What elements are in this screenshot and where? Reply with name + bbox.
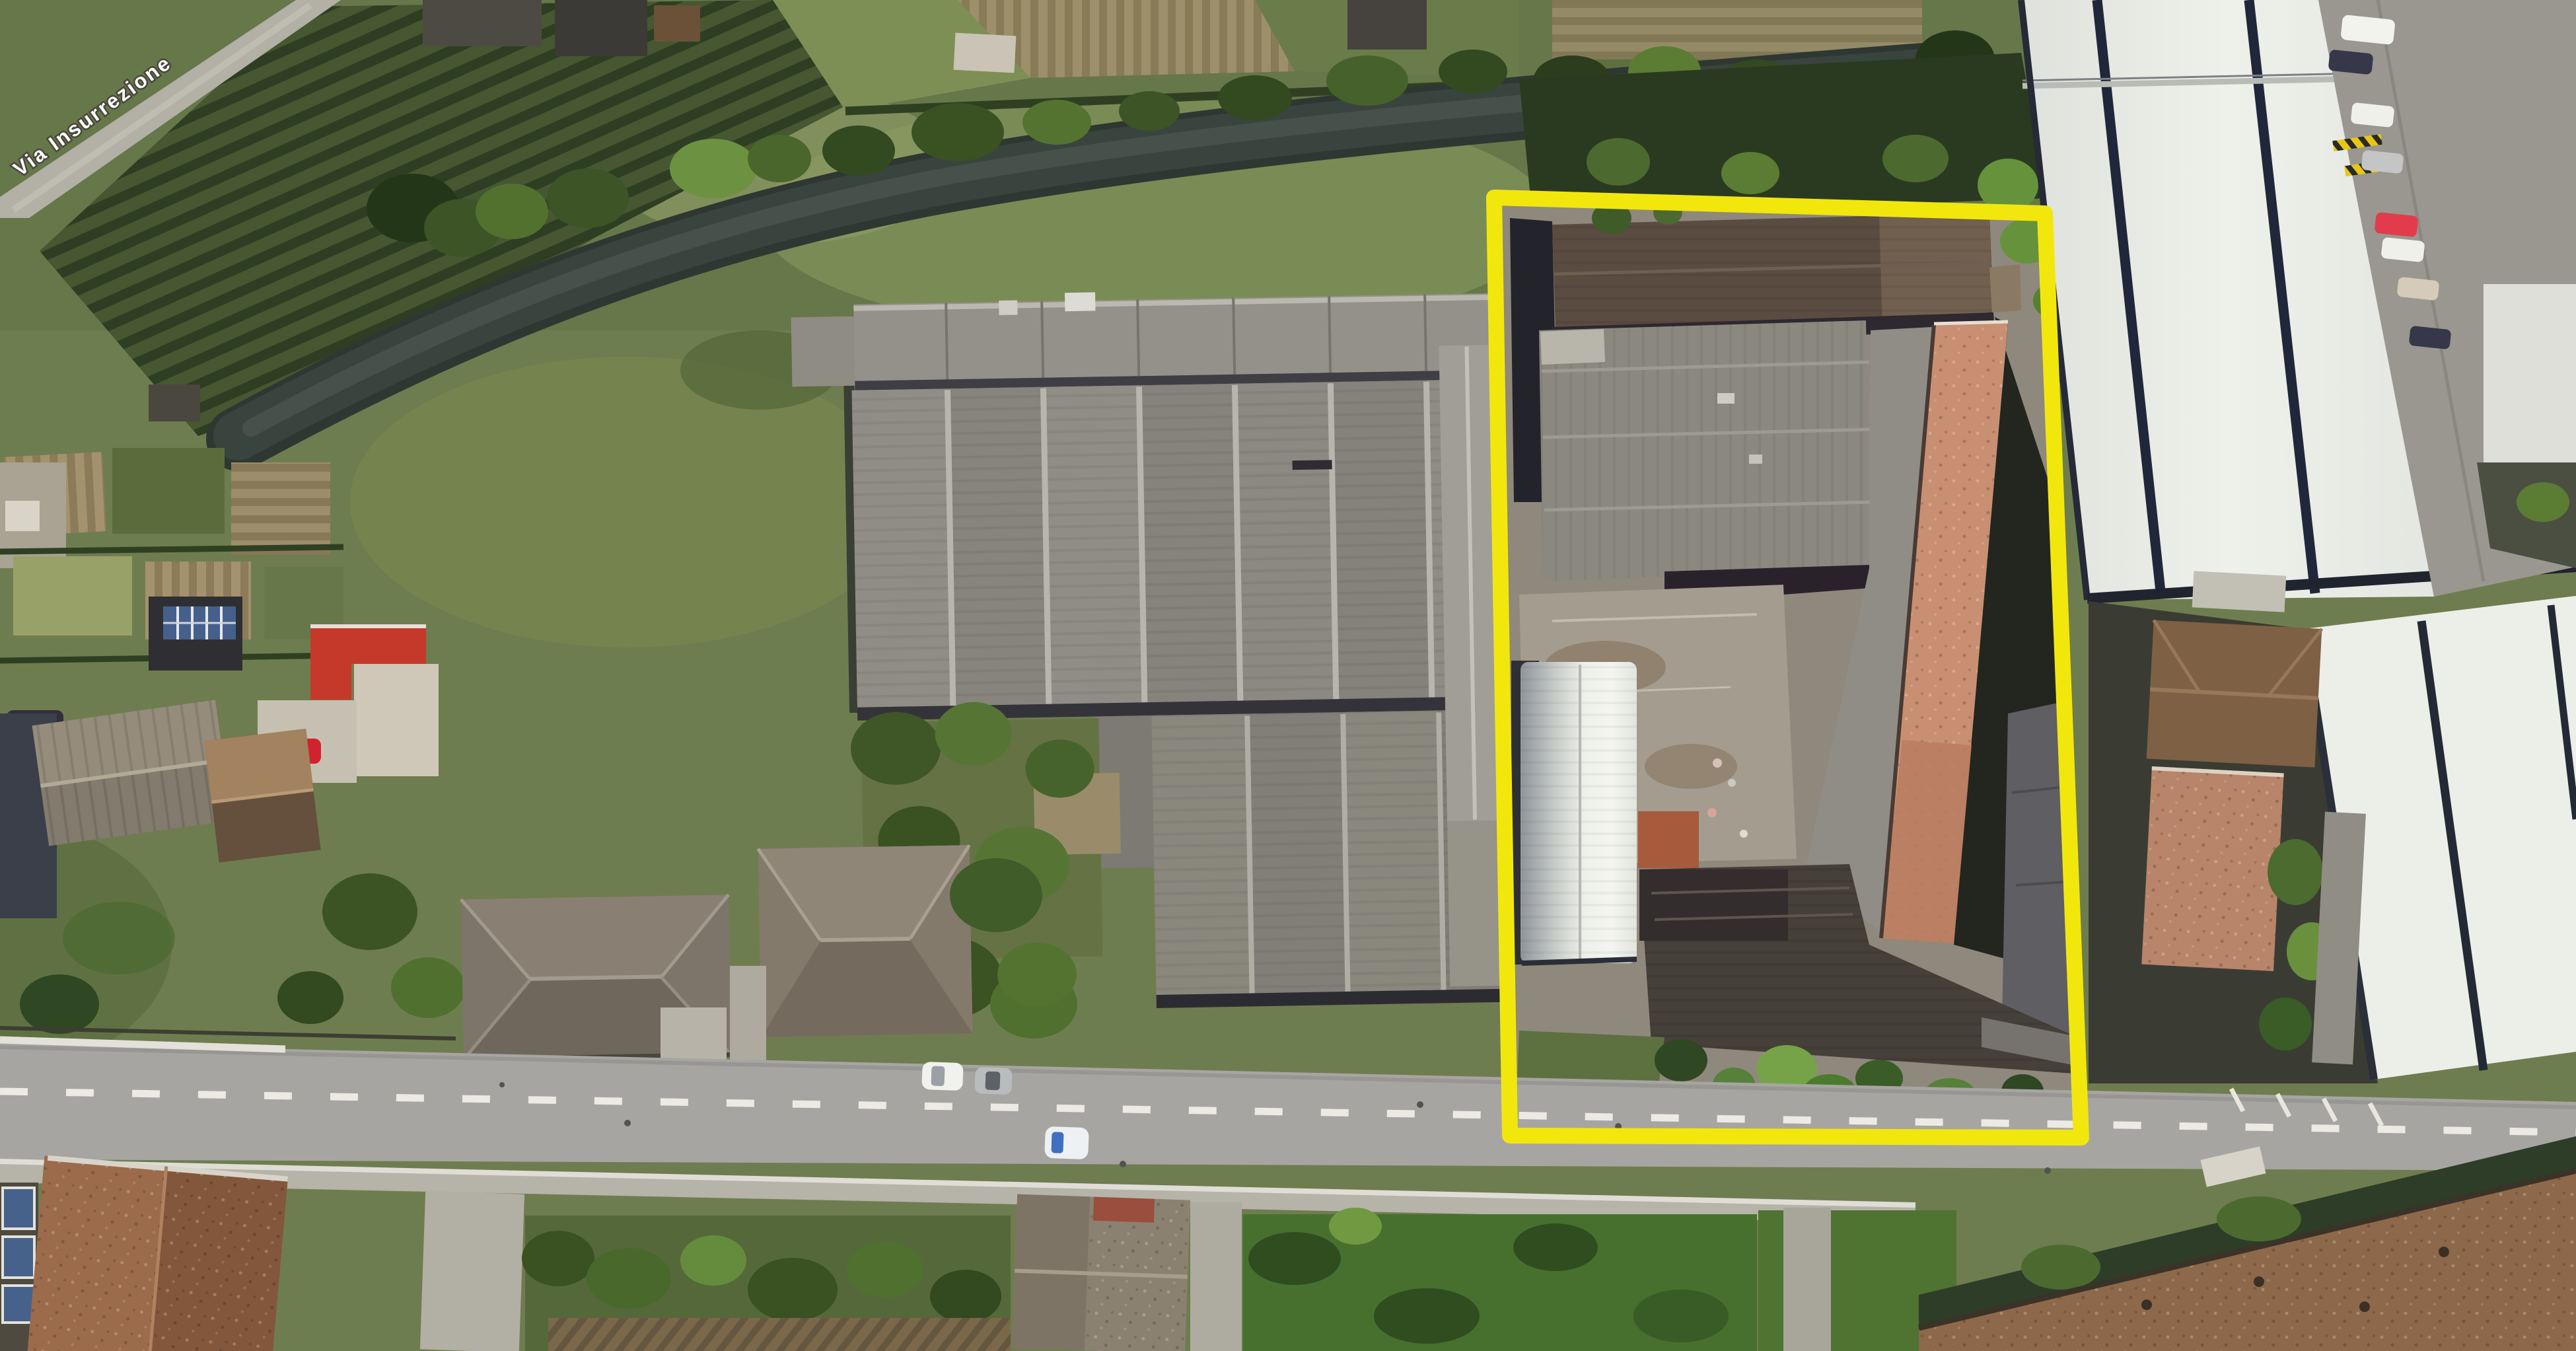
light-shed (954, 33, 1017, 73)
road-car-white (921, 1062, 963, 1091)
hip-roof-house-left (204, 729, 320, 863)
plot-green (112, 448, 225, 534)
shed-roof (654, 5, 700, 42)
aerial-map[interactable]: Via Insurrezione (0, 0, 2576, 1351)
road-car-silver (974, 1067, 1012, 1095)
parcel-white-barrel-roof (1511, 661, 1637, 965)
shed-roof (423, 0, 542, 46)
orchard-plot (548, 1318, 1011, 1351)
rooftop-hut (1065, 292, 1095, 311)
driveway (730, 966, 766, 1065)
highlight-parcel (1494, 198, 2090, 1138)
hip-roof-house-b (758, 845, 973, 1037)
salmon-tile-roof (2141, 766, 2283, 971)
tree (950, 858, 1042, 932)
white-shed (5, 501, 40, 531)
bottom-house-roof (1012, 1194, 1190, 1351)
lawn (1243, 1208, 1757, 1351)
tree (2517, 482, 2569, 522)
skylight-panels (3, 1188, 34, 1323)
shed-roof (1347, 0, 1427, 50)
parcel-gray-roof (1539, 320, 1871, 581)
bush (2217, 1196, 2301, 1241)
path (1190, 1202, 1242, 1351)
solar-panels (163, 606, 236, 639)
grass-patch (350, 357, 905, 647)
shed-roof (555, 0, 647, 56)
path (1783, 1208, 1831, 1351)
white-warehouse (2021, 0, 2576, 1083)
bottom-left-terracotta-roof (27, 1155, 288, 1351)
bush (2268, 839, 2323, 905)
roof-vent (1292, 460, 1332, 470)
path (420, 1190, 524, 1351)
garden-shed (149, 384, 200, 421)
bush (2259, 998, 2312, 1050)
plot-light (13, 556, 132, 636)
parking-white-car (2381, 237, 2425, 263)
parking-red-car (2375, 212, 2419, 238)
brown-hip-roof (2147, 620, 2322, 768)
industrial-shed-main (852, 379, 1528, 721)
tree (997, 943, 1077, 1006)
parking-white-car (2351, 102, 2395, 128)
parcel-terracotta-shed (1638, 811, 1699, 868)
road-car-moving (1044, 1126, 1089, 1159)
bush (2021, 1245, 2100, 1290)
plot-plowed (231, 462, 330, 555)
small-structures (2192, 571, 2287, 612)
white-outbuilding (2484, 284, 2576, 462)
annex-roof (791, 316, 855, 387)
hedge-garden (522, 1216, 1011, 1351)
corrugated-roof-house (32, 700, 233, 846)
rooftop-hut (999, 300, 1017, 314)
